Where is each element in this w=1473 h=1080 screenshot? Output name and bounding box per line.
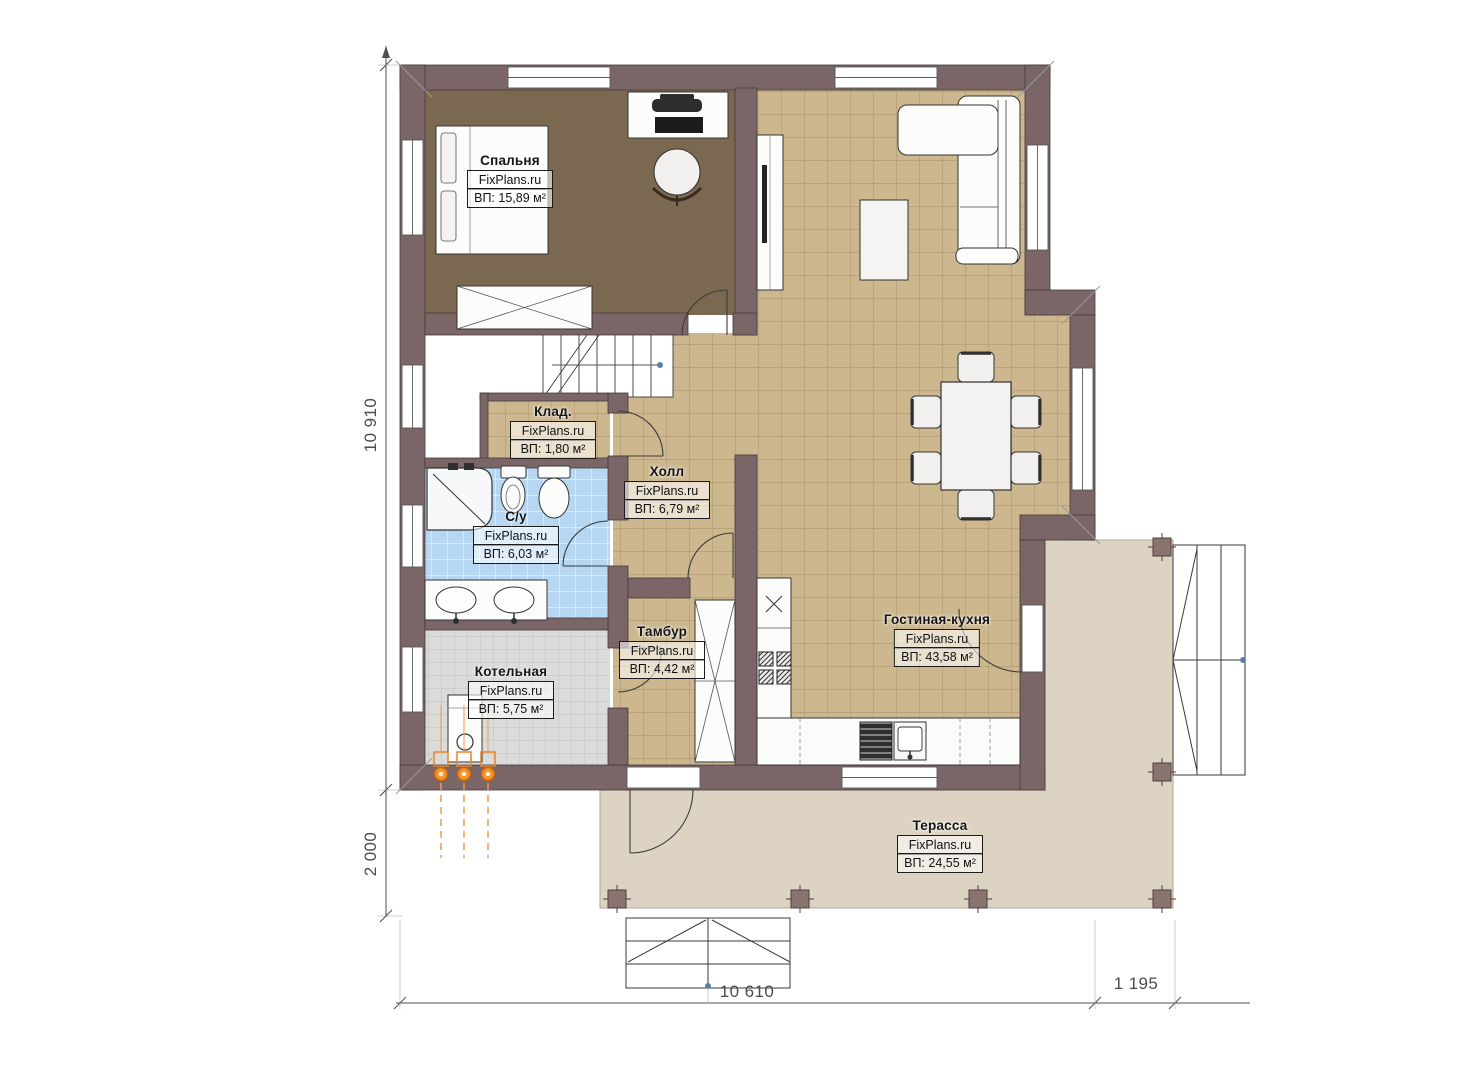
terrace-stairs-icon	[1173, 545, 1246, 775]
dining-chair-icon	[958, 352, 994, 382]
bidet-icon	[501, 466, 526, 513]
dining-chair-icon	[958, 490, 994, 520]
dining-chair-icon	[1011, 396, 1041, 428]
desk-icon	[628, 92, 728, 138]
window-icon	[1027, 145, 1048, 250]
vestibule-closet-icon	[695, 600, 735, 762]
window-icon	[1072, 368, 1093, 490]
kitchen-sink-icon	[894, 722, 926, 760]
dining-chair-icon	[911, 452, 941, 484]
tv-cabinet-icon	[757, 135, 783, 290]
appliance-icon	[860, 722, 892, 760]
toilet-icon	[538, 466, 570, 518]
staircase-icon	[543, 333, 673, 397]
dimension-bottom-main: 10 610	[720, 982, 774, 1002]
dining-chair-icon	[911, 396, 941, 428]
dimension-left-terrace: 2 000	[361, 832, 381, 877]
porch-steps-icon	[626, 918, 790, 989]
window-icon	[402, 140, 423, 235]
window-icon	[402, 365, 423, 428]
coffee-table-icon	[860, 200, 908, 280]
floor-plan-page: Спальня FixPlans.ru ВП: 15,89 м² Клад. F…	[0, 0, 1473, 1080]
dining-table-icon	[941, 382, 1011, 490]
dimension-left-total: 10 910	[361, 398, 381, 452]
dimension-bottom-terrace: 1 195	[1114, 974, 1159, 994]
window-icon	[835, 67, 937, 88]
bed-icon	[436, 126, 548, 254]
dining-chair-icon	[1011, 452, 1041, 484]
vanity-sinks-icon	[425, 580, 547, 624]
entrance-opening	[627, 767, 700, 788]
window-icon	[842, 767, 937, 788]
window-icon	[402, 647, 423, 712]
window-icon	[402, 505, 423, 567]
floor-plan-drawing	[0, 0, 1473, 1080]
terrace-door-opening	[1022, 605, 1043, 672]
shower-icon	[427, 463, 492, 530]
wardrobe-icon	[457, 286, 592, 329]
storage-floor	[484, 399, 610, 460]
window-icon	[508, 67, 610, 88]
